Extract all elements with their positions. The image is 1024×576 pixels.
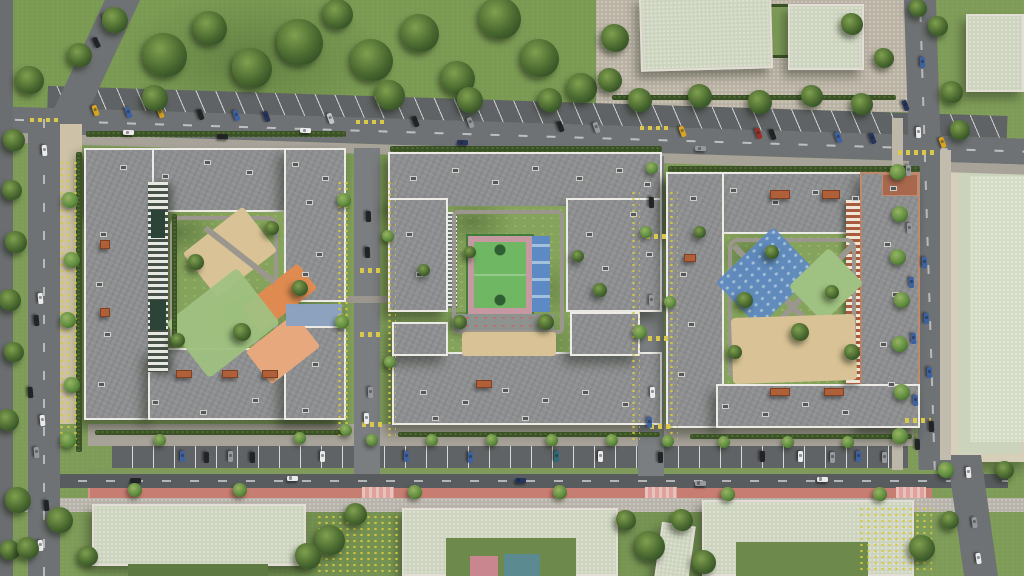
aerial-scene: Aerial render of residential complex wit… bbox=[0, 0, 1024, 576]
building-far-right-inner bbox=[970, 176, 1024, 442]
block2-fitness-pad bbox=[454, 314, 554, 330]
bike-lane bbox=[88, 488, 932, 498]
road-far-left bbox=[0, 0, 13, 576]
block2-wing-right bbox=[566, 198, 662, 312]
sidewalk-right-east bbox=[940, 150, 951, 460]
street-inner-1 bbox=[354, 148, 380, 474]
block3-wing-bottom bbox=[716, 384, 920, 428]
road-left-centerline bbox=[43, 110, 45, 576]
block2-stub-right bbox=[570, 312, 640, 356]
building-bottom-corner bbox=[654, 522, 695, 576]
kindergarten-building-a bbox=[639, 0, 773, 72]
block3-corner-red-roof bbox=[882, 174, 918, 196]
parking-strip-bottom bbox=[112, 446, 908, 468]
block2-bottom-bar bbox=[392, 352, 662, 425]
block2-sports-field bbox=[474, 242, 526, 308]
road-left bbox=[28, 110, 60, 576]
tree bbox=[941, 81, 963, 103]
tree bbox=[60, 432, 76, 448]
road-right-centerline bbox=[919, 0, 935, 470]
block1-bluepad bbox=[286, 304, 342, 326]
road-bottom-centerline bbox=[50, 480, 1008, 482]
block2-wing-left bbox=[388, 198, 448, 312]
block2-stub-left bbox=[392, 322, 448, 356]
building-bottom-left-court bbox=[128, 564, 268, 576]
building-top-far-right bbox=[966, 14, 1024, 92]
bottom-mid-court-pink-canopy bbox=[470, 556, 498, 576]
kindergarten-building-b bbox=[788, 4, 864, 70]
flower-bed bbox=[316, 514, 400, 572]
tree bbox=[315, 525, 345, 555]
path-tan-left bbox=[60, 124, 82, 424]
building-bottom-right-court bbox=[736, 542, 868, 576]
tree bbox=[616, 510, 636, 530]
block1-wing-left bbox=[84, 148, 154, 420]
building-bottom-left bbox=[92, 504, 306, 566]
block1-tower-glass-b bbox=[150, 300, 166, 330]
block2-playground-sand bbox=[462, 332, 556, 356]
block1-tower-glass-a bbox=[151, 210, 165, 238]
block3-playground-sand bbox=[731, 314, 857, 384]
road-bottom bbox=[50, 474, 1008, 488]
bottom-mid-court-teal-canopy bbox=[504, 554, 540, 576]
block2-court-blue bbox=[532, 236, 550, 312]
